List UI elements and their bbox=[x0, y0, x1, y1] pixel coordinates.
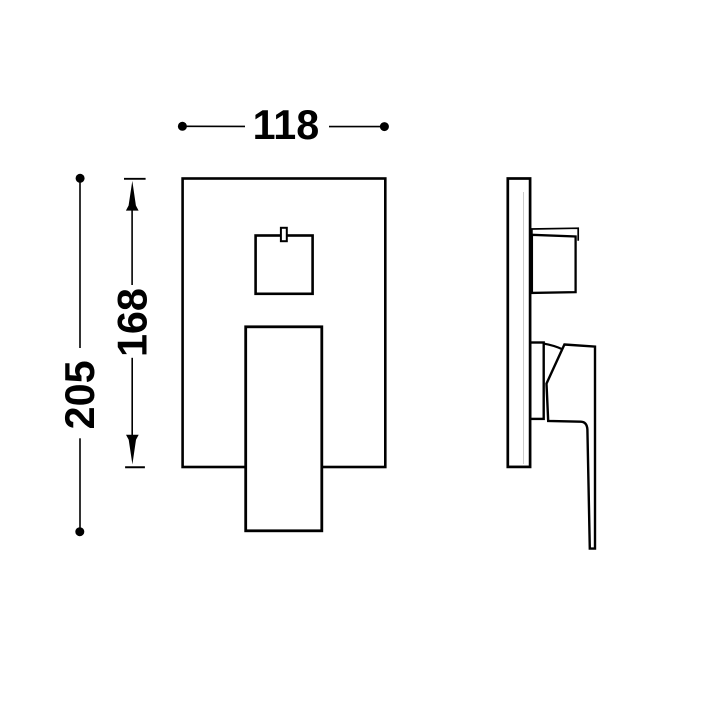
svg-text:118: 118 bbox=[253, 102, 320, 148]
svg-text:205: 205 bbox=[57, 360, 103, 429]
svg-text:168: 168 bbox=[109, 288, 155, 357]
